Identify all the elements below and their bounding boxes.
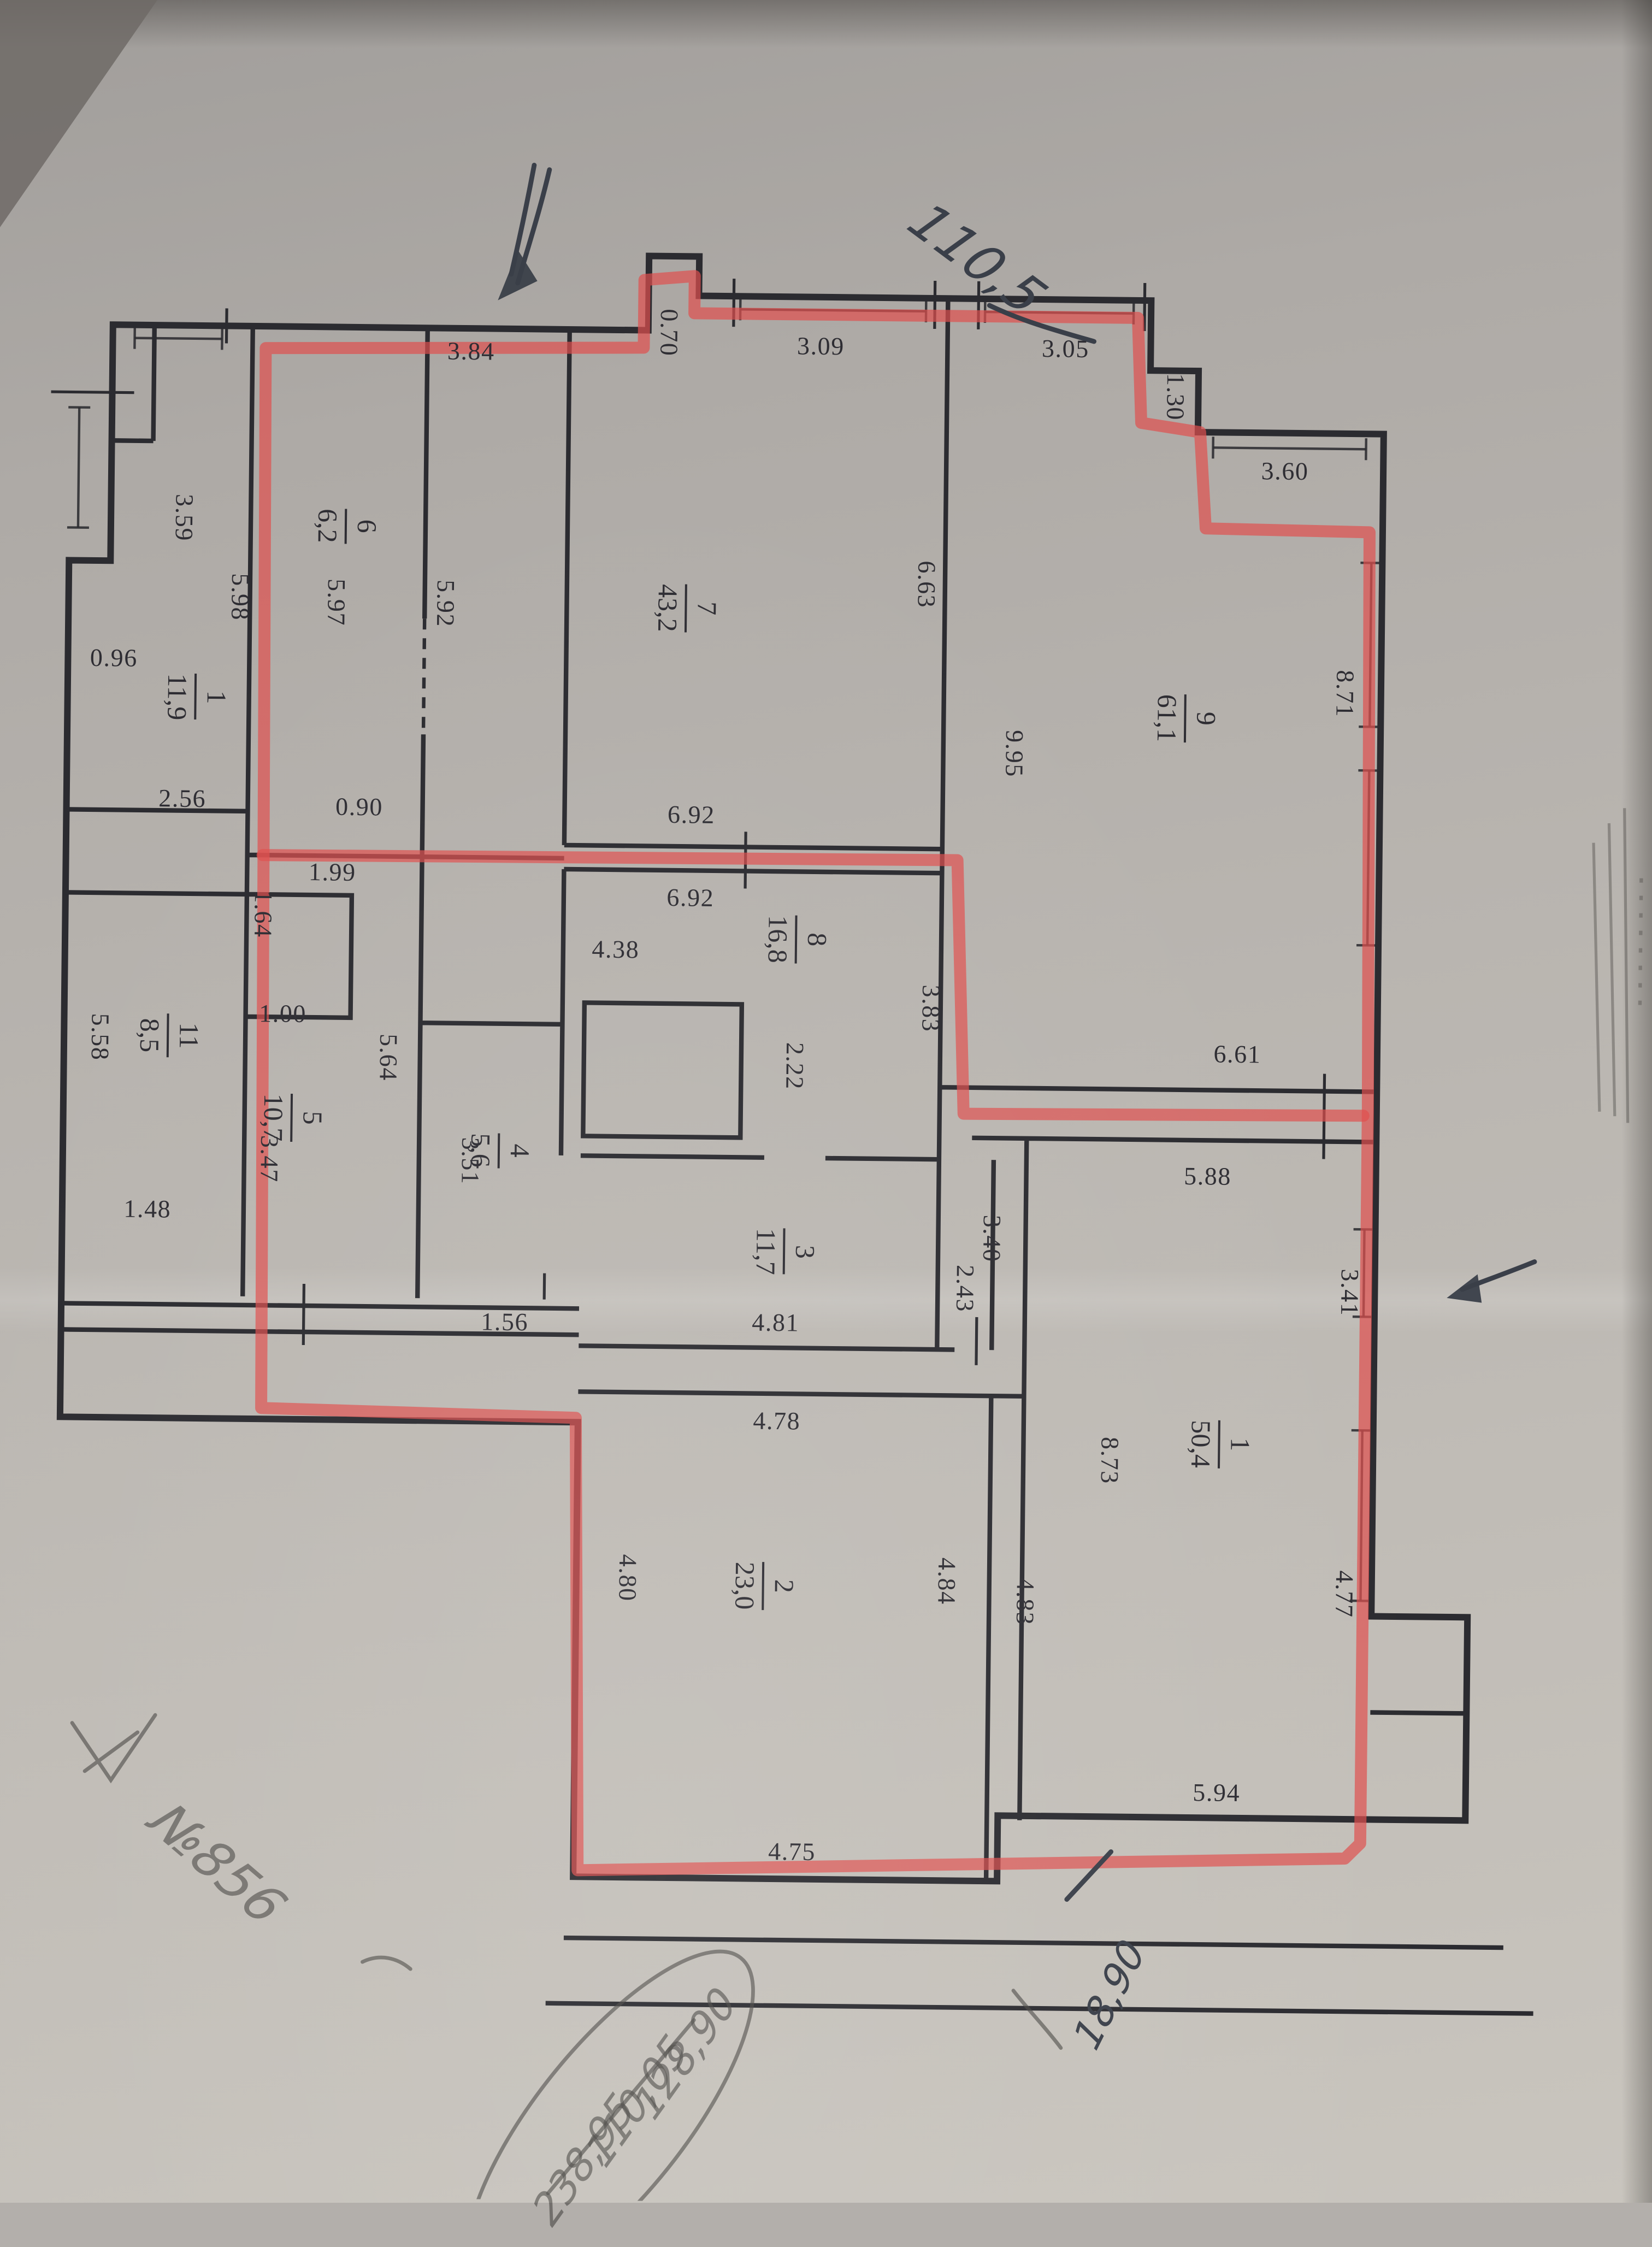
room-label: 223,0 [731,1561,797,1610]
dimension-label: 5.88 [1184,1167,1231,1193]
room-number: 5 [291,1094,326,1142]
room-area: 11,7 [752,1228,784,1275]
pen-tail-stroke [973,305,1128,1900]
dimension-label: 4.75 [768,1842,816,1868]
dimension-label: 5.97 [320,579,346,626]
dimension-label: 2.56 [158,789,206,815]
dimension-label: 2.43 [949,1265,975,1312]
dimension-label: 4.77 [1328,1570,1354,1618]
dimension-label: 0.96 [90,648,138,674]
paper-photo: 3.840.703.093.051.303.608.716.639.956.92… [0,0,1652,2203]
room-label: 510,7 [259,1093,326,1142]
dashed-wall [423,618,424,734]
pen-arrowhead-left-icon [1447,1274,1482,1303]
room-number: 9 [1185,694,1219,742]
room-number: 2 [763,1562,797,1610]
room-area: 61,1 [1153,694,1185,742]
room-label: 118,5 [136,1013,202,1058]
room-label: 961,1 [1153,694,1219,742]
room-number: 6 [346,509,380,543]
room-number: 11 [168,1013,202,1058]
dimension-label: 1.48 [123,1200,171,1225]
room-number: 3 [784,1228,818,1275]
dimension-label: 5.58 [84,1013,110,1060]
dimension-label: 5.92 [429,580,455,627]
dimension-label: 3.59 [168,494,194,541]
dimension-label: 1.99 [309,863,356,888]
room-label: 816,8 [764,915,830,964]
room-label: 743,2 [654,584,720,633]
dimension-label: 8.73 [1094,1437,1119,1484]
room-area: 5,6 [467,1133,499,1167]
dimension-label: 1.64 [247,890,273,937]
room-number: 1 [1219,1420,1253,1468]
dimension-label: 2.22 [778,1042,804,1090]
pen-arrowhead-icon [498,250,538,301]
dimension-label: 6.63 [910,561,936,608]
dimension-label: 6.92 [668,805,715,831]
room-area: 8,5 [136,1013,168,1058]
dimension-label: 3.40 [976,1214,1001,1262]
dimension-label: 6.92 [666,888,714,914]
dimension-label: 4.83 [1009,1578,1035,1625]
dimension-label: 4.81 [752,1313,799,1339]
room-label: 66,2 [314,509,380,544]
paper-edge-shadow [1621,0,1652,2203]
dimension-label: 5.64 [372,1034,398,1081]
dimension-label: 1.56 [481,1312,528,1338]
room-label: 311,7 [752,1228,818,1276]
dimension-label: 3.47 [253,1135,279,1183]
dimension-label: 0.90 [335,798,383,823]
dimension-label: 4.80 [611,1554,637,1601]
dimension-label: 4.38 [592,940,639,965]
dimension-label: 3.09 [797,337,845,362]
dimension-label: 8.71 [1329,670,1354,717]
room-number: 4 [499,1133,533,1167]
room-area: 6,2 [314,509,346,543]
room-number: 1 [195,674,229,721]
dimension-label: 1.30 [1159,373,1185,421]
dimension-label: 3.41 [1334,1269,1359,1316]
room-number: 8 [796,916,830,964]
dimension-label: 3.60 [1261,462,1308,487]
room-label: 150,4 [1187,1420,1253,1468]
dimension-label: 3.84 [447,342,495,368]
dimension-label: 5.98 [224,573,250,621]
room-area: 16,8 [764,915,796,963]
dimension-label: 3.05 [1042,339,1089,365]
dimension-label: 4.84 [930,1558,956,1605]
dimension-label: 5.94 [1193,1783,1240,1809]
dimension-label: 3.83 [914,984,940,1032]
room-label: 45,6 [467,1133,533,1168]
dimension-label: 0.70 [653,309,678,356]
room-area: 11,9 [163,673,196,720]
red-marker-branch [260,853,1366,1118]
room-label: 111,9 [163,673,229,721]
table-edge-shadow [0,0,1652,48]
dimension-label: 9.95 [998,730,1024,777]
floor-plan: 3.840.703.093.051.303.608.716.639.956.92… [0,0,1652,2211]
room-area: 43,2 [654,584,686,632]
dimension-label: 4.78 [753,1412,800,1437]
dimension-label: 6.61 [1213,1045,1261,1070]
room-area: 50,4 [1187,1420,1219,1468]
room-number: 7 [686,585,720,633]
room-area: 23,0 [731,1561,763,1609]
room-area: 10,7 [259,1093,292,1141]
dimension-label: 1.00 [259,1004,306,1030]
